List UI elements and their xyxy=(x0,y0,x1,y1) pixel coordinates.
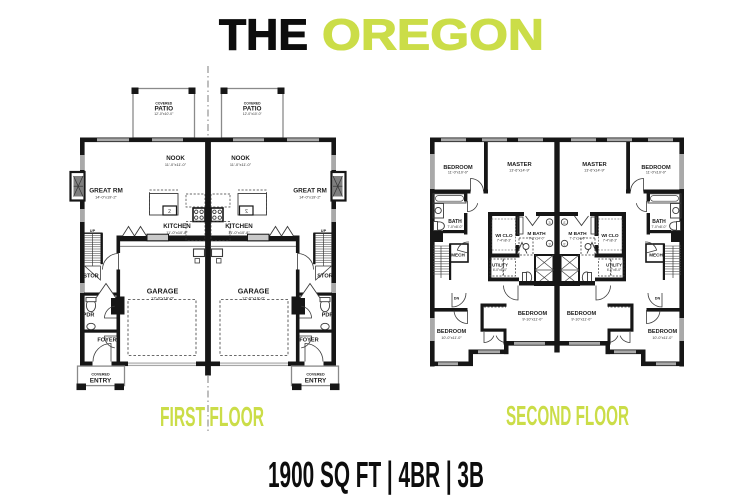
svg-text:UP: UP xyxy=(321,228,327,233)
svg-text:SECOND FLOOR: SECOND FLOOR xyxy=(506,400,629,431)
svg-text:2: 2 xyxy=(168,209,171,215)
svg-text:FOYER: FOYER xyxy=(97,338,116,344)
svg-text:COVERED: COVERED xyxy=(306,373,325,377)
svg-text:12'-0"x10'-0": 12'-0"x10'-0" xyxy=(154,112,174,116)
svg-text:GREAT RM: GREAT RM xyxy=(89,188,123,195)
svg-text:STOR: STOR xyxy=(317,274,332,280)
svg-text:1900 SQ FT | 4BR | 3B: 1900 SQ FT | 4BR | 3B xyxy=(268,454,484,496)
svg-text:6'-0"x5'-0": 6'-0"x5'-0" xyxy=(607,268,621,272)
svg-text:13'-6"x14'-9": 13'-6"x14'-9" xyxy=(509,169,530,173)
svg-text:BEDROOM: BEDROOM xyxy=(518,311,548,317)
svg-text:11'-0"x11'-0": 11'-0"x11'-0" xyxy=(230,162,252,167)
svg-text:12'-0"x10'-0": 12'-0"x10'-0" xyxy=(243,112,263,116)
svg-text:14'-0"x19'-2": 14'-0"x19'-2" xyxy=(299,195,321,200)
svg-text:FIRST FLOOR: FIRST FLOOR xyxy=(160,401,264,432)
svg-text:GREAT RM: GREAT RM xyxy=(293,188,327,195)
svg-text:MASTER: MASTER xyxy=(507,162,532,168)
svg-text:17'-0"x19'-0": 17'-0"x19'-0" xyxy=(151,296,174,301)
svg-text:NOOK: NOOK xyxy=(231,155,250,162)
svg-text:DN: DN xyxy=(454,297,460,301)
svg-text:10'-0"x11'-0": 10'-0"x11'-0" xyxy=(652,336,673,340)
svg-text:MECH: MECH xyxy=(649,253,663,258)
svg-text:10'-0"x11'-0": 10'-0"x11'-0" xyxy=(441,336,462,340)
svg-text:GARAGE: GARAGE xyxy=(238,287,270,296)
svg-text:BEDROOM: BEDROOM xyxy=(648,329,678,335)
svg-text:11'-0"x10'-8": 11'-0"x10'-8" xyxy=(228,230,250,235)
svg-text:MECH: MECH xyxy=(451,253,465,258)
svg-text:PDR: PDR xyxy=(83,313,95,319)
svg-text:11'-0"x10'-0": 11'-0"x10'-0" xyxy=(646,171,667,175)
svg-text:ENTRY: ENTRY xyxy=(90,378,112,385)
svg-text:UTILITY: UTILITY xyxy=(606,263,622,268)
svg-text:11'-0"x10'-8": 11'-0"x10'-8" xyxy=(166,230,188,235)
svg-text:9'-10"x11'-0": 9'-10"x11'-0" xyxy=(522,318,543,322)
svg-text:2: 2 xyxy=(245,209,248,215)
svg-text:STOR: STOR xyxy=(83,274,98,280)
svg-text:7'-4"x8'-3": 7'-4"x8'-3" xyxy=(497,239,511,243)
svg-text:17'-0"x19'-0": 17'-0"x19'-0" xyxy=(242,296,265,301)
svg-text:6'-0"x5'-0": 6'-0"x5'-0" xyxy=(493,268,507,272)
svg-text:7'-0"x8'-0": 7'-0"x8'-0" xyxy=(447,225,463,229)
svg-text:ENTRY: ENTRY xyxy=(305,378,327,385)
svg-text:KITCHEN: KITCHEN xyxy=(163,223,191,230)
svg-text:DN: DN xyxy=(655,297,661,301)
svg-text:MASTER: MASTER xyxy=(582,162,607,168)
svg-text:UP: UP xyxy=(90,228,96,233)
svg-text:BEDROOM: BEDROOM xyxy=(437,329,467,335)
svg-text:7'-2"x14'-0": 7'-2"x14'-0" xyxy=(569,237,585,241)
svg-text:OREGON: OREGON xyxy=(322,12,544,60)
svg-text:THE: THE xyxy=(219,12,308,60)
svg-text:GARAGE: GARAGE xyxy=(147,287,179,296)
svg-text:PDR: PDR xyxy=(322,313,334,319)
svg-text:UTILITY: UTILITY xyxy=(492,263,508,268)
svg-text:BEDROOM: BEDROOM xyxy=(567,311,597,317)
svg-text:11'-0"x11'-0": 11'-0"x11'-0" xyxy=(165,162,187,167)
svg-text:KITCHEN: KITCHEN xyxy=(225,223,253,230)
svg-text:13'-6"x14'-9": 13'-6"x14'-9" xyxy=(584,169,605,173)
svg-text:FOYER: FOYER xyxy=(299,338,318,344)
svg-text:14'-0"x19'-2": 14'-0"x19'-2" xyxy=(95,195,117,200)
svg-text:9'-10"x11'-0": 9'-10"x11'-0" xyxy=(571,318,592,322)
svg-text:NOOK: NOOK xyxy=(166,155,185,162)
svg-text:11'-0"x10'-0": 11'-0"x10'-0" xyxy=(448,171,469,175)
svg-text:COVERED: COVERED xyxy=(91,373,110,377)
svg-text:7'-2"x14'-0": 7'-2"x14'-0" xyxy=(528,237,544,241)
svg-text:7'-0"x8'-0": 7'-0"x8'-0" xyxy=(651,225,667,229)
svg-text:7'-4"x8'-3": 7'-4"x8'-3" xyxy=(603,239,617,243)
